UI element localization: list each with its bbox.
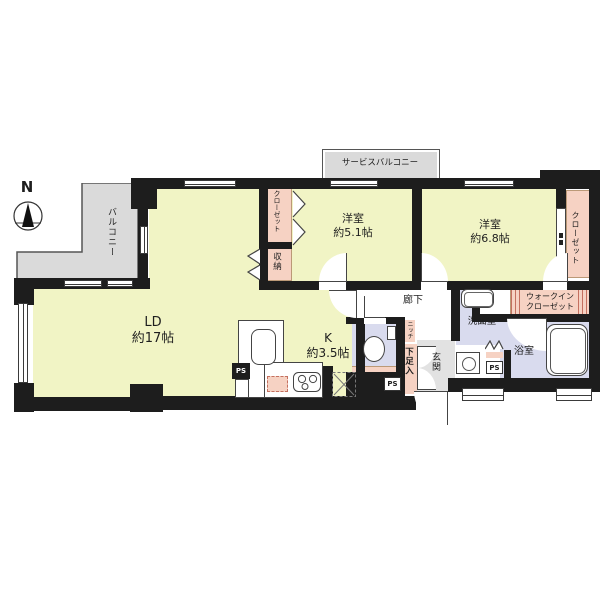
- door-entrance: [414, 391, 448, 425]
- ps-washroom: PS: [486, 361, 503, 374]
- window-ld-west: [18, 303, 28, 383]
- sliding-door-tick-1: [559, 233, 563, 238]
- window-bath-south: [556, 388, 592, 401]
- bifold-door-storage-icon: [246, 248, 261, 281]
- living-dining-size: 約17帖: [108, 331, 198, 347]
- bedroom-large-name: 洋室: [450, 218, 530, 232]
- wall-bedrooms-south-a: [259, 281, 319, 290]
- walk-in-closet-line1: ウォークイン: [513, 292, 587, 302]
- pillar-top-left: [131, 178, 157, 209]
- living-dining-room: [149, 188, 260, 290]
- walk-in-closet-label: ウォークイン クローゼット: [513, 292, 587, 312]
- living-dining-label: LD 約17帖: [108, 315, 198, 348]
- ps-kitchen: PS: [232, 363, 250, 379]
- floor-plan: サービスバルコニー バルコニー: [0, 0, 600, 600]
- window-balcony-east: [140, 226, 148, 254]
- opening-bedroom-large: [421, 282, 447, 290]
- service-balcony-label: サービスバルコニー: [326, 158, 434, 169]
- wall-corridor-east: [451, 283, 460, 341]
- ps-toilet: PS: [384, 377, 401, 391]
- kitchen-name: K: [297, 331, 359, 346]
- bathtub-inner: [550, 328, 586, 374]
- niche-label: ニッチ: [406, 321, 412, 339]
- window-hall-south: [462, 388, 504, 401]
- north-compass-icon: [8, 196, 48, 236]
- dishwasher: [267, 376, 288, 392]
- bedroom-large-label: 洋室 約6.8帖: [450, 218, 530, 246]
- bathroom-label: 浴室: [504, 346, 544, 359]
- entrance-label: 玄関: [430, 352, 439, 372]
- vanity-bowl-icon: [462, 357, 476, 371]
- kitchen-label: K 約3.5帖: [297, 331, 359, 361]
- bedroom-small-name: 洋室: [315, 212, 391, 226]
- corridor-label: 廊下: [392, 295, 434, 308]
- kitchen-tall-cabinet: [235, 379, 249, 398]
- bedroom-small-label: 洋室 約5.1帖: [315, 212, 391, 240]
- window-balcony-south-a: [64, 280, 102, 287]
- living-dining-name: LD: [108, 315, 198, 331]
- folding-door-washroom-icon: [485, 340, 504, 350]
- refrigerator-space-icon: [332, 372, 356, 397]
- storage-label: 収納: [272, 252, 281, 271]
- stove-icon: [293, 372, 321, 392]
- wall-bottom-west: [33, 397, 133, 411]
- wall-closet-right-top: [556, 178, 566, 208]
- pillar-left: [14, 278, 34, 305]
- bedroom-small-size: 約5.1帖: [315, 226, 391, 240]
- wall-bedrooms-south-b: [346, 281, 421, 290]
- washing-machine-pan: [461, 289, 494, 308]
- wall-bottom-mid: [162, 396, 416, 410]
- bathtub-icon: [546, 324, 588, 376]
- window-bedroom-large-top: [464, 180, 514, 187]
- pillar-bottom: [130, 384, 163, 412]
- opening-walkin: [543, 282, 567, 290]
- closet-bedroom-small-label: クローゼット: [273, 190, 280, 232]
- closet-bedroom-large-label: クローゼット: [571, 211, 579, 265]
- balcony-label: バルコニー: [106, 207, 115, 257]
- kitchen-size: 約3.5帖: [297, 346, 359, 361]
- walk-in-closet-line2: クローゼット: [513, 302, 587, 312]
- washroom-label: 洗面室: [454, 316, 510, 328]
- vanity-sink: [456, 352, 480, 374]
- window-bedroom-small-top: [330, 180, 378, 187]
- window-balcony-south-b: [107, 280, 133, 287]
- bedroom-large-size: 約6.8帖: [450, 232, 530, 246]
- window-ld-top: [184, 180, 236, 187]
- compass-north-label: N: [14, 178, 40, 197]
- door-toilet: [364, 296, 385, 318]
- shoe-cabinet-label: 下足入: [404, 347, 413, 376]
- bifold-door-closet-small-icon: [292, 190, 308, 246]
- sliding-door-tick-2: [559, 240, 563, 245]
- toilet-tank-icon: [387, 326, 396, 340]
- pillar-bottom-left: [14, 383, 34, 412]
- wall-closet-divider: [259, 242, 292, 249]
- opening-toilet: [364, 318, 386, 324]
- washroom-shelf: [486, 352, 503, 358]
- kitchen-sink: [251, 329, 276, 365]
- washing-machine-inner: [464, 292, 493, 307]
- opening-bedroom-small: [319, 282, 346, 290]
- toilet-bowl-icon: [363, 336, 385, 362]
